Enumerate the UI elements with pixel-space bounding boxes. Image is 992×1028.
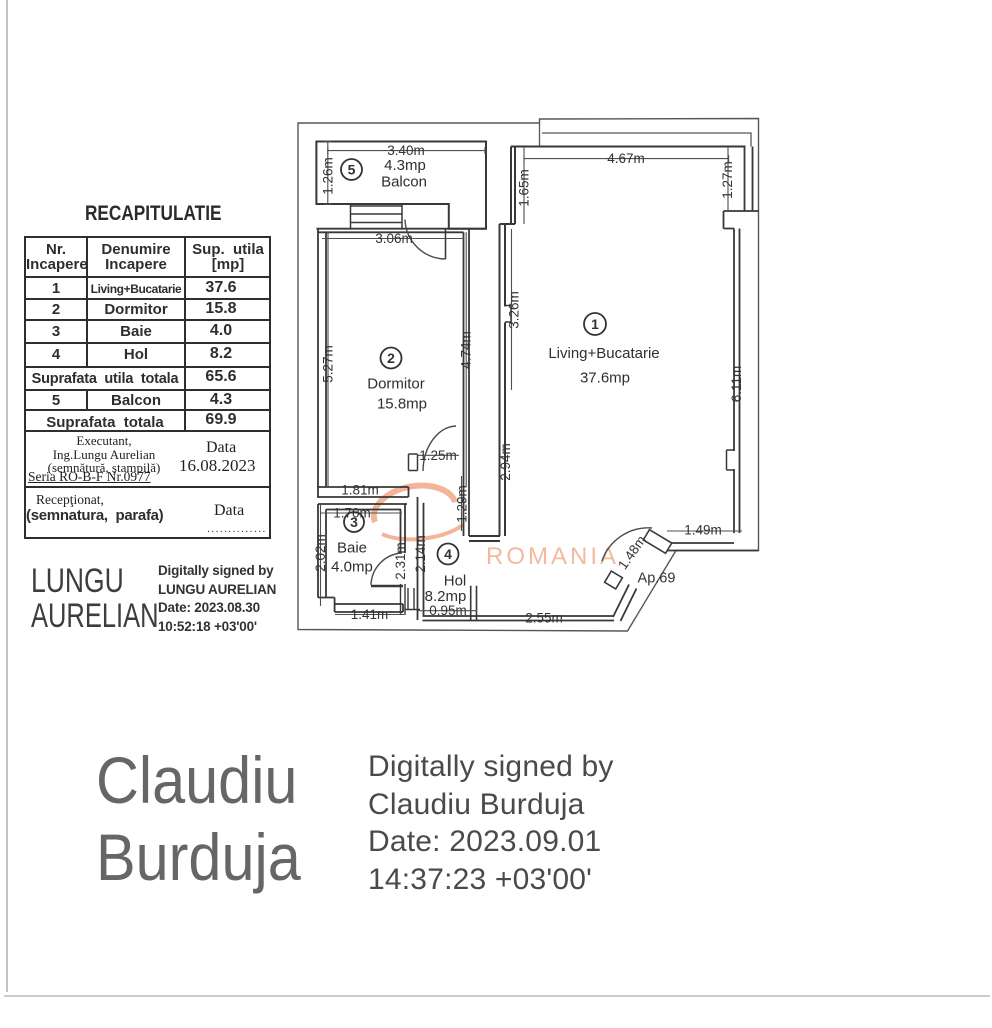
svg-text:ROMANIA: ROMANIA [486, 543, 619, 570]
svg-text:2.02m: 2.02m [313, 534, 328, 572]
svg-text:1.41m: 1.41m [351, 607, 389, 622]
svg-text:0.95m: 0.95m [429, 603, 467, 618]
svg-text:4.74m: 4.74m [459, 331, 474, 369]
svg-text:15.8mp: 15.8mp [377, 396, 427, 413]
svg-text:2: 2 [387, 350, 395, 366]
svg-text:1.29m: 1.29m [455, 485, 470, 523]
svg-text:4.3mp: 4.3mp [384, 157, 426, 174]
svg-text:1.81m: 1.81m [341, 483, 379, 498]
svg-text:6.11m: 6.11m [729, 366, 744, 403]
svg-text:1.48m: 1.48m [615, 533, 649, 572]
svg-text:3.26m: 3.26m [507, 291, 522, 329]
svg-text:1.25m: 1.25m [419, 448, 457, 463]
svg-text:37.6mp: 37.6mp [580, 370, 630, 387]
svg-text:4: 4 [444, 546, 452, 562]
svg-text:8.2mp: 8.2mp [425, 588, 467, 605]
svg-text:1.49m: 1.49m [684, 523, 722, 538]
svg-text:1.65m: 1.65m [517, 169, 532, 207]
svg-text:5: 5 [348, 162, 356, 178]
svg-text:Baie: Baie [337, 540, 367, 557]
svg-text:Ap.69: Ap.69 [638, 571, 676, 587]
svg-text:Hol: Hol [444, 573, 467, 590]
svg-text:4.0mp: 4.0mp [331, 559, 373, 576]
svg-text:2.94m: 2.94m [498, 443, 513, 481]
svg-text:Living+Bucatarie: Living+Bucatarie [548, 345, 659, 362]
svg-text:2.31m: 2.31m [393, 542, 408, 580]
svg-text:Balcon: Balcon [381, 174, 427, 191]
svg-text:Dormitor: Dormitor [367, 376, 425, 393]
svg-text:4.67m: 4.67m [607, 151, 645, 166]
svg-text:2.55m: 2.55m [525, 611, 563, 626]
svg-text:1.27m: 1.27m [720, 161, 735, 199]
svg-text:1.26m: 1.26m [320, 157, 335, 195]
svg-text:2.14m: 2.14m [413, 535, 428, 573]
svg-text:5.27m: 5.27m [321, 345, 336, 383]
svg-text:3.06m: 3.06m [375, 231, 413, 246]
svg-text:3: 3 [350, 514, 358, 530]
svg-text:1: 1 [591, 316, 599, 332]
svg-text:3.40m: 3.40m [387, 143, 425, 158]
